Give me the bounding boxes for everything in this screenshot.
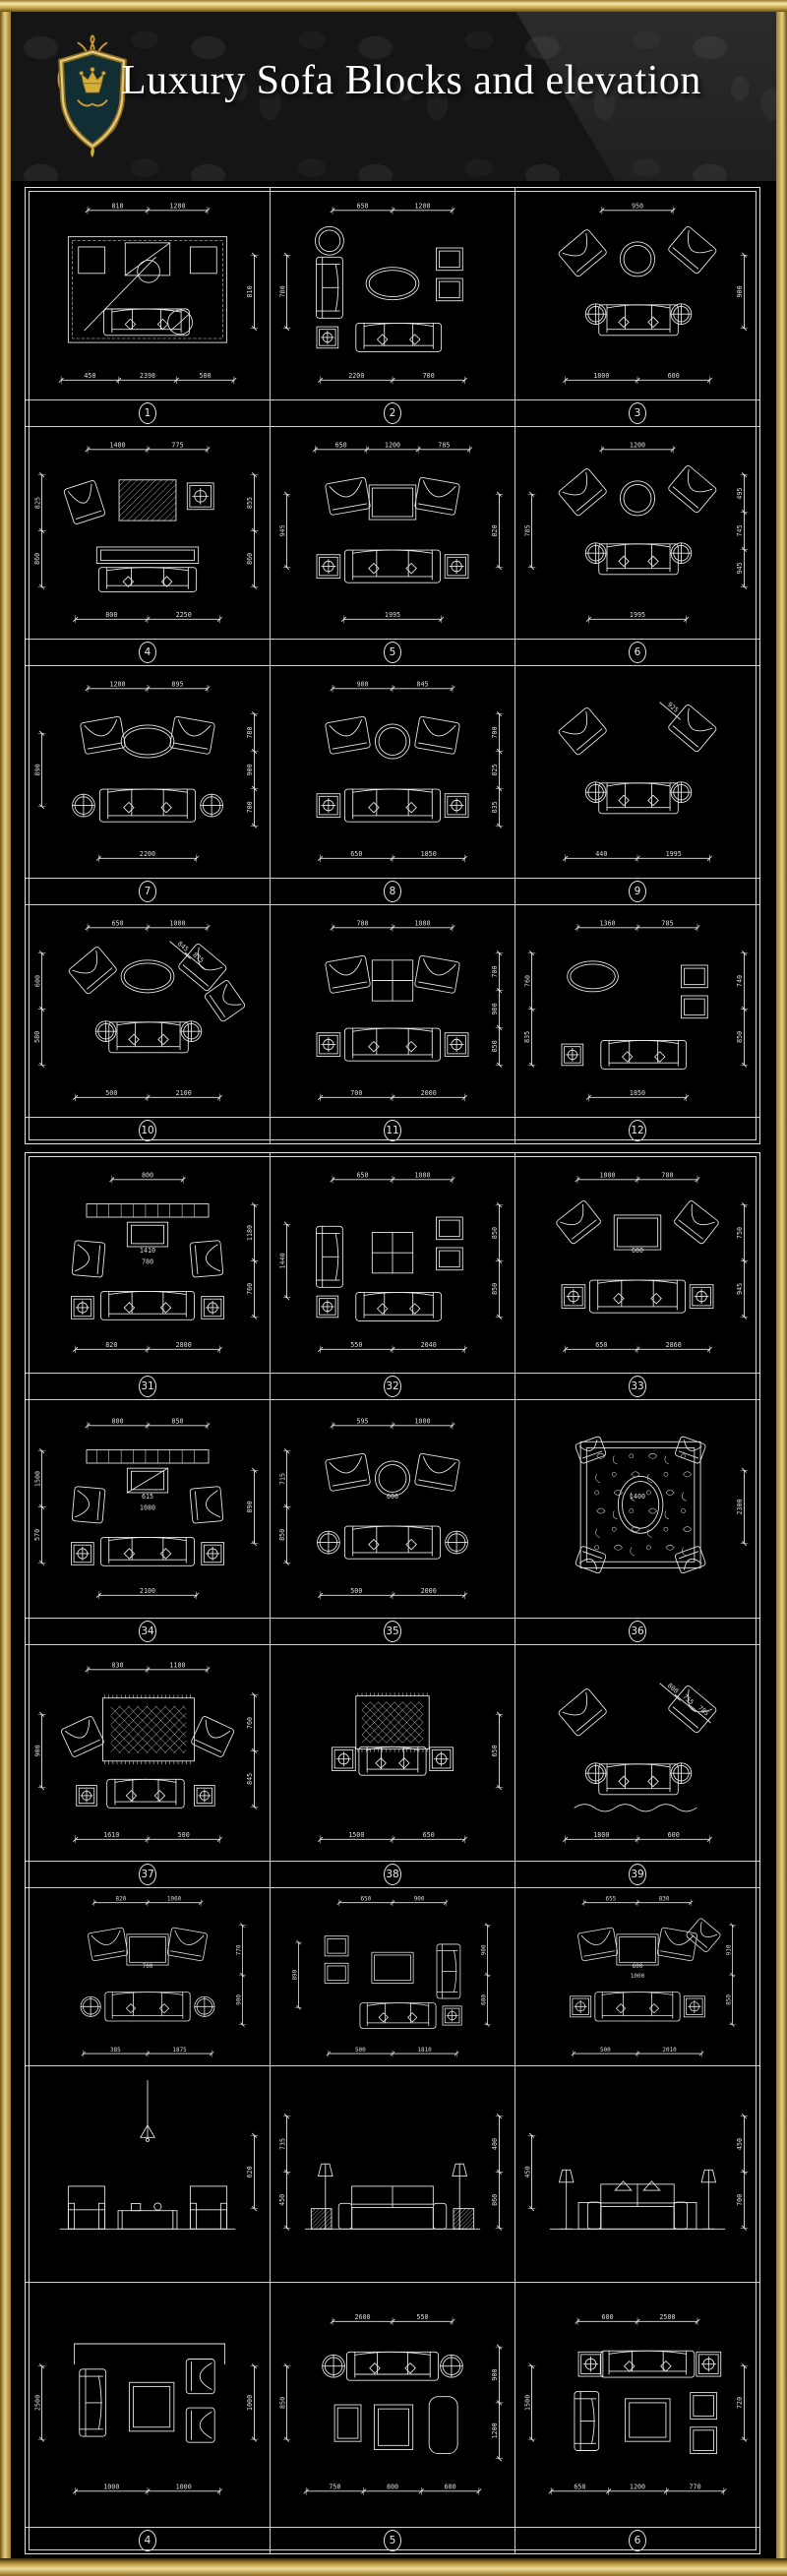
svg-text:2250: 2250 <box>176 611 192 619</box>
svg-text:600: 600 <box>668 1831 680 1839</box>
svg-text:855: 855 <box>246 497 254 509</box>
cell-number-badge: 6 <box>629 2530 646 2551</box>
cad-drawing: 4401995925 <box>515 666 759 878</box>
svg-text:1200: 1200 <box>385 441 400 449</box>
svg-text:500: 500 <box>355 2047 366 2054</box>
cell-number-badge: 37 <box>139 1864 156 1885</box>
svg-text:2100: 2100 <box>140 1587 155 1595</box>
sheet-row: 8008202800118076014107806501000550204014… <box>26 1153 759 1400</box>
svg-text:2860: 2860 <box>666 1341 682 1349</box>
svg-text:980: 980 <box>491 1003 499 1014</box>
svg-text:600: 600 <box>387 1493 398 1501</box>
svg-text:650: 650 <box>423 1831 435 1839</box>
svg-text:1810: 1810 <box>417 2047 432 2054</box>
svg-text:655: 655 <box>606 1896 617 1903</box>
cad-drawing: 600250065012007701500720 <box>515 2283 759 2527</box>
cad-sheet-2: 8008202800118076014107806501000550204014… <box>25 1152 760 2554</box>
svg-text:1995: 1995 <box>666 850 682 858</box>
cell-number-badge: 33 <box>629 1376 646 1397</box>
svg-text:2500: 2500 <box>659 2313 675 2321</box>
page-title: Luxury Sofa Blocks and elevation <box>121 57 701 104</box>
svg-text:785: 785 <box>523 524 531 536</box>
svg-text:550: 550 <box>350 1341 362 1349</box>
svg-text:800: 800 <box>105 611 117 619</box>
svg-text:570: 570 <box>33 1529 41 1541</box>
cad-drawing: 9008456501850700825835 <box>271 666 515 878</box>
cad-cell: 59510005002000715850600 <box>271 1400 515 1618</box>
cad-cell: 78010007002000700980850 <box>271 905 515 1117</box>
svg-text:650: 650 <box>356 1171 368 1179</box>
sheet-row: 6501000500210060058084587578010007002000… <box>26 905 759 1143</box>
svg-text:1180: 1180 <box>246 1225 254 1241</box>
svg-text:1000: 1000 <box>176 2484 192 2491</box>
sheet-row: 8201060385187577090070065090050018108909… <box>26 1888 759 2066</box>
svg-text:1180: 1180 <box>169 1661 185 1669</box>
cell-number-badge: 32 <box>384 1376 401 1397</box>
cell-number-badge: 39 <box>629 1864 646 1885</box>
svg-text:900: 900 <box>356 680 368 688</box>
cell-number-strip: 456 <box>26 639 759 665</box>
svg-text:800: 800 <box>111 1417 123 1425</box>
svg-text:1000: 1000 <box>414 1171 430 1179</box>
cell-number-strip: 789 <box>26 878 759 904</box>
svg-text:1000: 1000 <box>414 919 430 927</box>
cad-cell: 12001995785495745945 <box>515 427 759 639</box>
cell-number-badge: 11 <box>384 1120 401 1141</box>
svg-text:600: 600 <box>33 975 41 987</box>
svg-text:745: 745 <box>736 524 744 536</box>
svg-text:450: 450 <box>523 2166 531 2177</box>
cad-cell: 735450400860 <box>271 2066 515 2282</box>
svg-text:700: 700 <box>491 965 499 977</box>
svg-text:500: 500 <box>178 1831 190 1839</box>
svg-text:650: 650 <box>111 919 123 927</box>
svg-text:850: 850 <box>491 1040 499 1052</box>
cell-number-strip: 456 <box>26 2527 759 2553</box>
cad-cell: 9501800600900 <box>515 188 759 399</box>
cad-drawing: 735450400860 <box>271 2066 515 2282</box>
svg-text:800: 800 <box>666 1682 680 1695</box>
cell-number-badge: 8 <box>384 881 401 902</box>
svg-text:1080: 1080 <box>140 1504 155 1512</box>
svg-text:450: 450 <box>278 2194 286 2206</box>
svg-text:770: 770 <box>690 2484 701 2491</box>
svg-text:740: 740 <box>736 975 744 987</box>
cad-cell: 800850210015005708906151080 <box>26 1400 271 1618</box>
cad-drawing: 81012004502398500810 <box>26 188 270 399</box>
svg-text:720: 720 <box>736 2397 744 2409</box>
cell-number-badge: 9 <box>629 881 646 902</box>
sheet-row: 8101200450239850081065012002200700780950… <box>26 188 759 427</box>
cad-sheet-1: 8101200450239850081065012002200700780950… <box>25 187 760 1144</box>
svg-text:1060: 1060 <box>167 1896 182 1903</box>
svg-text:760: 760 <box>246 1717 254 1729</box>
sheet-row: 8301180161050090076084515006506501800600… <box>26 1645 759 1888</box>
svg-text:755: 755 <box>681 1692 695 1706</box>
svg-text:700: 700 <box>350 1089 362 1097</box>
svg-text:850: 850 <box>491 1227 499 1239</box>
svg-text:700: 700 <box>736 2194 744 2206</box>
svg-text:800: 800 <box>142 1171 153 1179</box>
svg-text:700: 700 <box>491 726 499 738</box>
svg-text:925: 925 <box>666 701 680 714</box>
svg-text:780: 780 <box>246 726 254 738</box>
cad-drawing: 26005507508006008509001200 <box>271 2283 515 2527</box>
svg-text:860: 860 <box>33 553 41 565</box>
cell-number-badge: 1 <box>139 402 156 424</box>
svg-text:440: 440 <box>595 850 607 858</box>
cad-drawing: 78010007002000700980850 <box>271 905 515 1117</box>
svg-text:780: 780 <box>356 919 368 927</box>
svg-text:1200: 1200 <box>630 2484 645 2491</box>
cad-cell: 12008952200890780900700 <box>26 666 271 878</box>
svg-text:900: 900 <box>491 2368 499 2380</box>
cad-drawing: 450450700 <box>515 2066 759 2282</box>
cad-cell: 800820280011807601410780 <box>26 1153 271 1373</box>
svg-text:825: 825 <box>33 497 41 509</box>
svg-text:845: 845 <box>416 680 428 688</box>
svg-text:1000: 1000 <box>599 1171 615 1179</box>
cad-cell: 23001400 <box>515 1400 759 1618</box>
cad-cell: 65012002200700780 <box>271 188 515 399</box>
svg-text:810: 810 <box>111 202 123 210</box>
svg-text:1995: 1995 <box>630 611 645 619</box>
svg-text:750: 750 <box>329 2484 340 2491</box>
cad-drawing: 13607851850760835740850 <box>515 905 759 1117</box>
cell-number-badge: 31 <box>139 1376 156 1397</box>
cad-drawing: 620 <box>26 2066 270 2282</box>
svg-text:600: 600 <box>445 2484 456 2491</box>
svg-text:900: 900 <box>235 1994 242 2005</box>
svg-text:2500: 2500 <box>33 2395 41 2411</box>
cad-cell: 82010603851875770900700 <box>26 1888 271 2065</box>
svg-text:945: 945 <box>278 524 286 536</box>
svg-text:1000: 1000 <box>103 2484 119 2491</box>
svg-text:450: 450 <box>84 372 95 380</box>
svg-text:820: 820 <box>105 1341 117 1349</box>
svg-text:650: 650 <box>335 441 347 449</box>
svg-text:845: 845 <box>176 940 190 953</box>
svg-text:700: 700 <box>423 372 435 380</box>
svg-text:760: 760 <box>523 975 531 987</box>
svg-text:780: 780 <box>142 1258 153 1266</box>
svg-text:600: 600 <box>601 2313 613 2321</box>
svg-text:600: 600 <box>668 372 680 380</box>
svg-text:850: 850 <box>491 1283 499 1295</box>
cad-cell: 9008456501850700825835 <box>271 666 515 878</box>
svg-text:2200: 2200 <box>348 372 364 380</box>
cad-drawing: 83011801610500900760845 <box>26 1645 270 1861</box>
svg-text:1850: 1850 <box>421 850 437 858</box>
svg-text:650: 650 <box>356 202 368 210</box>
svg-text:760: 760 <box>246 1283 254 1295</box>
cad-cell: 6509005001810890900600 <box>271 1888 515 2065</box>
cad-cell: 1000100025001000 <box>26 2283 271 2527</box>
svg-text:820: 820 <box>491 524 499 536</box>
svg-text:1000: 1000 <box>631 1973 645 1980</box>
svg-text:785: 785 <box>438 441 450 449</box>
cad-drawing: 1500650650 <box>271 1645 515 1861</box>
svg-text:860: 860 <box>491 2194 499 2206</box>
svg-text:1410: 1410 <box>140 1247 155 1255</box>
cad-cell: 83011801610500900760845 <box>26 1645 271 1861</box>
sheet-row: 8008502100150057089061510805951000500200… <box>26 1400 759 1645</box>
cad-drawing: 65010005002100600580845875 <box>26 905 270 1117</box>
cad-drawing: 800850210015005708906151080 <box>26 1400 270 1618</box>
svg-text:450: 450 <box>736 2138 744 2150</box>
cad-drawing: 12008952200890780900700 <box>26 666 270 878</box>
svg-text:650: 650 <box>361 1896 372 1903</box>
sheet-row: 1200895220089078090070090084565018507008… <box>26 666 759 905</box>
svg-text:890: 890 <box>33 764 41 775</box>
svg-text:1000: 1000 <box>169 919 185 927</box>
svg-text:1200: 1200 <box>414 202 430 210</box>
svg-text:2000: 2000 <box>421 1587 437 1595</box>
svg-text:850: 850 <box>725 1994 732 2005</box>
svg-text:1200: 1200 <box>109 680 125 688</box>
cad-drawing: 65012002200700780 <box>271 188 515 399</box>
svg-text:785: 785 <box>661 919 673 927</box>
svg-text:500: 500 <box>105 1089 117 1097</box>
svg-text:830: 830 <box>659 1896 670 1903</box>
cell-number-badge: 5 <box>384 642 401 663</box>
cad-sheets-container: 8101200450239850081065012002200700780950… <box>0 0 787 2576</box>
cad-cell: 65012007851995945820 <box>271 427 515 639</box>
svg-text:1400: 1400 <box>630 1493 645 1501</box>
svg-text:1995: 1995 <box>385 611 400 619</box>
cell-number-badge: 5 <box>384 2530 401 2551</box>
svg-text:500: 500 <box>350 1587 362 1595</box>
svg-text:835: 835 <box>523 1031 531 1043</box>
svg-text:780: 780 <box>661 1171 673 1179</box>
svg-text:820: 820 <box>116 1896 127 1903</box>
svg-text:650: 650 <box>350 850 362 858</box>
svg-text:385: 385 <box>110 2047 121 2054</box>
svg-text:1875: 1875 <box>172 2047 187 2054</box>
cell-number-badge: 3 <box>629 402 646 424</box>
svg-text:875: 875 <box>191 951 205 964</box>
svg-text:835: 835 <box>491 801 499 813</box>
svg-text:830: 830 <box>111 1661 123 1669</box>
cad-drawing: 65012007851995945820 <box>271 427 515 639</box>
svg-text:1200: 1200 <box>630 441 645 449</box>
cell-number-badge: 35 <box>384 1621 401 1642</box>
svg-text:810: 810 <box>246 285 254 297</box>
svg-text:400: 400 <box>491 2138 499 2150</box>
svg-text:2398: 2398 <box>140 372 155 380</box>
svg-text:2800: 2800 <box>176 1341 192 1349</box>
svg-text:2040: 2040 <box>421 1341 437 1349</box>
cell-number-badge: 4 <box>139 2530 156 2551</box>
cell-number-badge: 4 <box>139 642 156 663</box>
svg-text:825: 825 <box>491 764 499 775</box>
svg-text:900: 900 <box>736 285 744 297</box>
svg-text:700: 700 <box>246 801 254 813</box>
cad-drawing: 1800600800755785 <box>515 1645 759 1861</box>
svg-text:900: 900 <box>414 1896 425 1903</box>
svg-text:1500: 1500 <box>523 2395 531 2411</box>
cad-cell: 450450700 <box>515 2066 759 2282</box>
svg-text:850: 850 <box>736 1031 744 1043</box>
svg-text:2600: 2600 <box>354 2313 370 2321</box>
cad-drawing: 65583050020109108506001000 <box>515 1888 759 2065</box>
cad-cell: 26005507508006008509001200 <box>271 2283 515 2527</box>
svg-text:900: 900 <box>33 1745 41 1756</box>
svg-text:2200: 2200 <box>140 850 155 858</box>
svg-text:890: 890 <box>246 1501 254 1512</box>
svg-text:1610: 1610 <box>103 1831 119 1839</box>
cad-drawing: 23001400 <box>515 1400 759 1618</box>
cell-number-badge: 2 <box>384 402 401 424</box>
svg-text:850: 850 <box>171 1417 183 1425</box>
cad-cell: 65010005002100600580845875 <box>26 905 271 1117</box>
cad-cell: 1500650650 <box>271 1645 515 1861</box>
sheet-row: 1400775800225082586085586065012007851995… <box>26 427 759 666</box>
svg-text:1400: 1400 <box>109 441 125 449</box>
sheet-row: 1000100025001000260055075080060085090012… <box>26 2283 759 2553</box>
svg-text:1500: 1500 <box>33 1471 41 1487</box>
svg-text:700: 700 <box>143 1963 153 1970</box>
svg-text:1440: 1440 <box>278 1253 286 1268</box>
cell-number-badge: 38 <box>384 1864 401 1885</box>
cell-number-badge: 10 <box>139 1120 156 1141</box>
svg-text:845: 845 <box>246 1773 254 1785</box>
svg-text:950: 950 <box>632 202 643 210</box>
cad-drawing: 82010603851875770900700 <box>26 1888 270 2065</box>
svg-text:1200: 1200 <box>491 2423 499 2438</box>
svg-text:1850: 1850 <box>630 1089 645 1097</box>
cell-number-strip: 123 <box>26 399 759 426</box>
cad-cell: 1800600800755785 <box>515 1645 759 1861</box>
svg-text:890: 890 <box>291 1969 298 1980</box>
cad-cell: 14007758002250825860855860 <box>26 427 271 639</box>
svg-text:580: 580 <box>33 1031 41 1043</box>
svg-text:600: 600 <box>480 1994 487 2005</box>
svg-text:860: 860 <box>246 553 254 565</box>
cad-drawing: 10007806502860750945600 <box>515 1153 759 1373</box>
svg-text:550: 550 <box>416 2313 428 2321</box>
cad-cell: 650100055020401440850850 <box>271 1153 515 1373</box>
svg-text:650: 650 <box>574 2484 585 2491</box>
cad-cell: 10007806502860750945600 <box>515 1153 759 1373</box>
cad-drawing: 6509005001810890900600 <box>271 1888 515 2065</box>
cad-drawing: 1000100025001000 <box>26 2283 270 2527</box>
svg-text:945: 945 <box>736 1283 744 1295</box>
svg-text:900: 900 <box>480 1944 487 1955</box>
svg-text:770: 770 <box>235 1944 242 1955</box>
svg-text:910: 910 <box>725 1944 732 1955</box>
svg-text:785: 785 <box>696 1704 710 1718</box>
svg-text:900: 900 <box>246 764 254 775</box>
svg-text:780: 780 <box>278 285 286 297</box>
cell-number-strip: 313233 <box>26 1373 759 1399</box>
cell-number-badge: 34 <box>139 1621 156 1642</box>
cell-number-badge: 7 <box>139 881 156 902</box>
svg-text:1200: 1200 <box>169 202 185 210</box>
svg-text:600: 600 <box>633 1963 643 1970</box>
cad-drawing: 12001995785495745945 <box>515 427 759 639</box>
svg-text:2010: 2010 <box>662 2047 677 2054</box>
cell-number-strip: 343536 <box>26 1618 759 1644</box>
cad-cell: 65583050020109108506001000 <box>515 1888 759 2065</box>
cad-cell: 620 <box>26 2066 271 2282</box>
svg-text:600: 600 <box>632 1247 643 1255</box>
svg-text:620: 620 <box>246 2166 254 2177</box>
cell-number-badge: 36 <box>629 1621 646 1642</box>
svg-text:2100: 2100 <box>176 1089 192 1097</box>
svg-text:1360: 1360 <box>599 919 615 927</box>
cell-number-strip: 373839 <box>26 1861 759 1887</box>
cad-drawing: 9501800600900 <box>515 188 759 399</box>
cad-drawing: 59510005002000715850600 <box>271 1400 515 1618</box>
svg-text:715: 715 <box>278 1473 286 1485</box>
svg-text:750: 750 <box>736 1227 744 1239</box>
svg-text:500: 500 <box>600 2047 611 2054</box>
svg-text:495: 495 <box>736 487 744 499</box>
cad-drawing: 800820280011807601410780 <box>26 1153 270 1373</box>
svg-text:1800: 1800 <box>593 372 609 380</box>
cell-number-badge: 12 <box>629 1120 646 1141</box>
svg-text:1000: 1000 <box>246 2395 254 2411</box>
svg-text:650: 650 <box>491 1745 499 1756</box>
svg-text:650: 650 <box>595 1341 607 1349</box>
svg-text:775: 775 <box>171 441 183 449</box>
svg-text:850: 850 <box>278 1529 286 1541</box>
cad-drawing: 650100055020401440850850 <box>271 1153 515 1373</box>
cell-number-badge: 6 <box>629 642 646 663</box>
cad-drawing: 14007758002250825860855860 <box>26 427 270 639</box>
cad-cell: 13607851850760835740850 <box>515 905 759 1117</box>
svg-text:1000: 1000 <box>414 1417 430 1425</box>
cad-cell: 600250065012007701500720 <box>515 2283 759 2527</box>
svg-text:895: 895 <box>171 680 183 688</box>
svg-text:850: 850 <box>278 2397 286 2409</box>
svg-text:595: 595 <box>356 1417 368 1425</box>
svg-text:2000: 2000 <box>421 1089 437 1097</box>
svg-text:500: 500 <box>200 372 212 380</box>
svg-text:2300: 2300 <box>736 1499 744 1514</box>
svg-text:800: 800 <box>387 2484 398 2491</box>
sheet-row: 620735450400860450450700 <box>26 2066 759 2283</box>
svg-text:1500: 1500 <box>348 1831 364 1839</box>
svg-text:735: 735 <box>278 2138 286 2150</box>
cad-cell: 81012004502398500810 <box>26 188 271 399</box>
cell-number-strip: 101112 <box>26 1117 759 1143</box>
svg-text:1800: 1800 <box>593 1831 609 1839</box>
svg-text:615: 615 <box>142 1493 153 1501</box>
svg-text:945: 945 <box>736 562 744 574</box>
cad-cell: 4401995925 <box>515 666 759 878</box>
